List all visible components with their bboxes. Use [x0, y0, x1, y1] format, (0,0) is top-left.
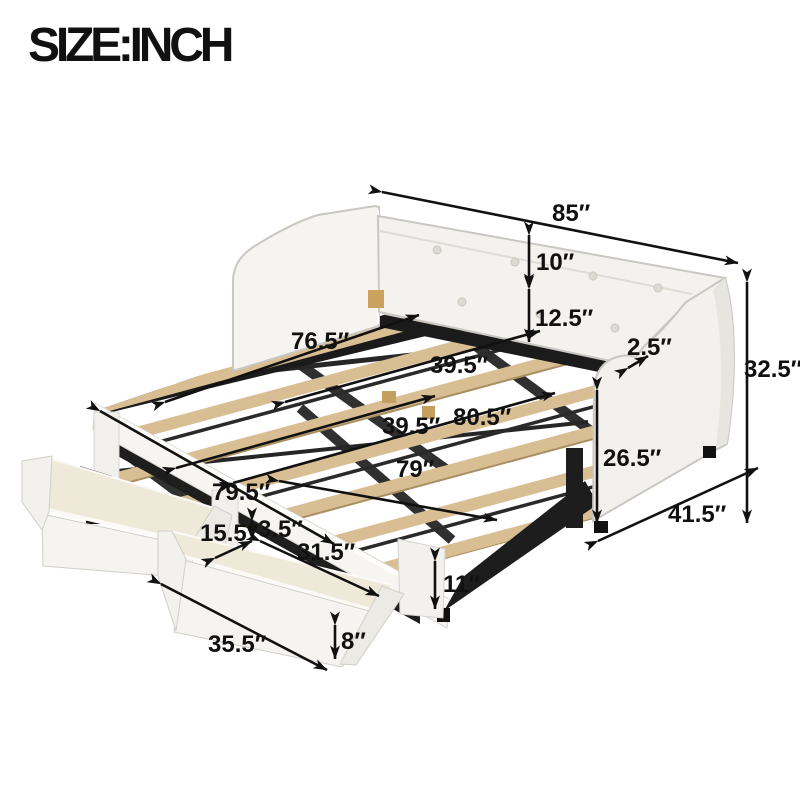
svg-text:8″: 8″ — [341, 628, 366, 655]
svg-text:12.5″: 12.5″ — [535, 305, 594, 332]
svg-text:39.5″: 39.5″ — [430, 352, 489, 379]
svg-text:79″: 79″ — [396, 456, 435, 483]
svg-text:31.5″: 31.5″ — [297, 539, 356, 566]
svg-text:26.5″: 26.5″ — [603, 445, 662, 472]
svg-text:76.5″: 76.5″ — [291, 328, 350, 355]
svg-text:35.5″: 35.5″ — [208, 631, 267, 658]
svg-text:2.5″: 2.5″ — [627, 334, 672, 361]
svg-text:85″: 85″ — [552, 200, 591, 227]
svg-text:32.5″: 32.5″ — [744, 356, 800, 383]
svg-text:11″: 11″ — [443, 571, 480, 598]
svg-text:10″: 10″ — [536, 249, 575, 276]
svg-text:SIZE:INCH: SIZE:INCH — [28, 19, 232, 72]
svg-text:79.5″: 79.5″ — [212, 479, 271, 506]
svg-text:15.5″: 15.5″ — [200, 520, 259, 547]
svg-text:80.5″: 80.5″ — [453, 404, 512, 431]
svg-text:41.5″: 41.5″ — [668, 501, 727, 528]
svg-text:39.5″: 39.5″ — [382, 413, 441, 440]
